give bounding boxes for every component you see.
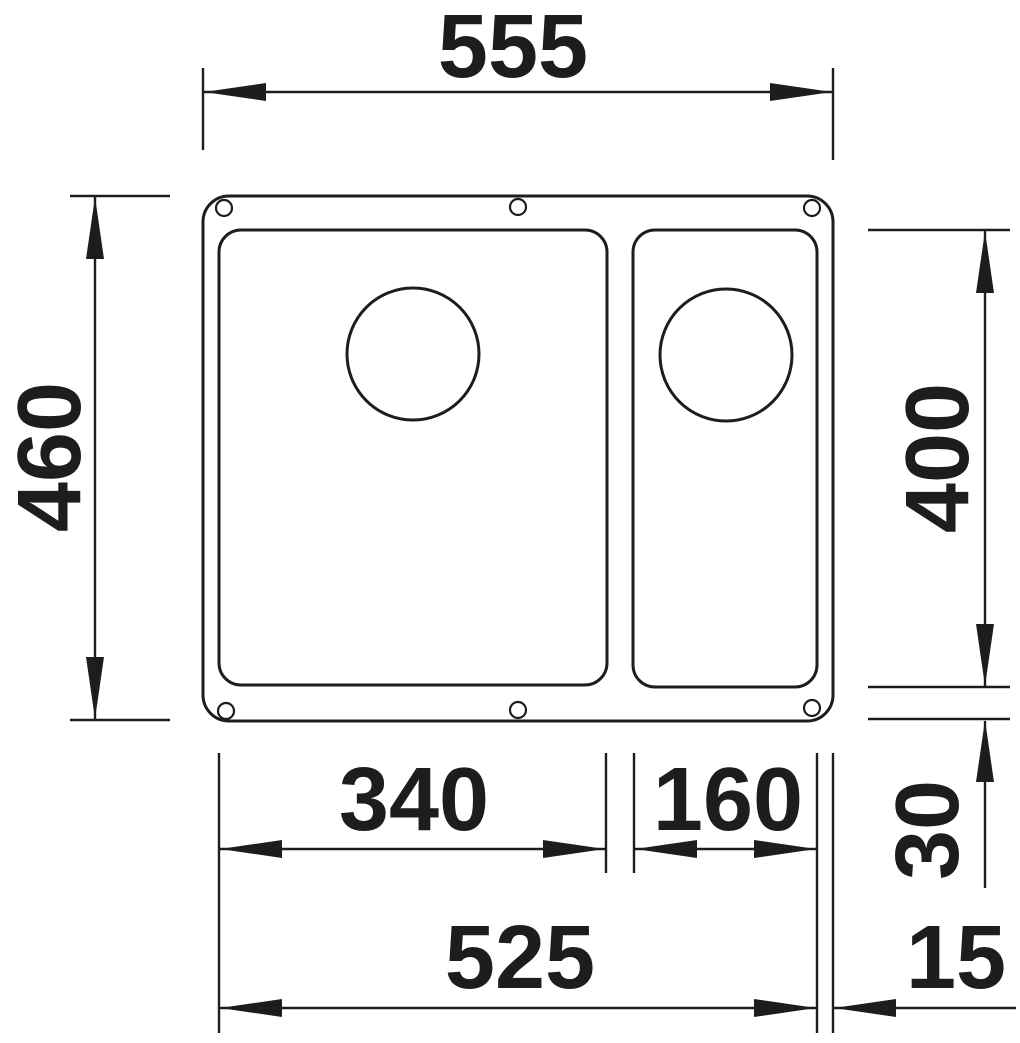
arrowhead-right bbox=[543, 840, 605, 858]
mounting-hole-top-left bbox=[216, 200, 232, 216]
dimension-bowl-depth: 400 bbox=[868, 230, 1010, 687]
drawing-canvas: 555 460 400 30 bbox=[0, 0, 1020, 1043]
sink-body bbox=[203, 196, 833, 721]
arrowhead-down bbox=[976, 624, 994, 686]
arrowhead-up bbox=[976, 231, 994, 293]
main-bowl bbox=[219, 230, 607, 685]
dimension-label-525: 525 bbox=[445, 908, 595, 1008]
dimension-label-400: 400 bbox=[888, 383, 988, 533]
arrowhead-up bbox=[86, 197, 104, 259]
dimension-label-30: 30 bbox=[878, 780, 978, 880]
dimension-bowls-span: 525 bbox=[220, 908, 816, 1017]
mounting-hole-bottom-right bbox=[804, 700, 820, 716]
mounting-hole-bottom-left bbox=[218, 703, 234, 719]
dimension-label-340: 340 bbox=[339, 750, 489, 850]
dimension-half-bowl-width: 160 bbox=[634, 750, 817, 1033]
dimension-label-160: 160 bbox=[653, 750, 803, 850]
sink-technical-drawing: 555 460 400 30 bbox=[0, 0, 1020, 1043]
arrowhead-left bbox=[204, 83, 266, 101]
mounting-hole-top-right bbox=[804, 200, 820, 216]
dimension-label-555: 555 bbox=[438, 0, 588, 97]
mounting-hole-top-center bbox=[510, 199, 526, 215]
sink-outer-edge bbox=[203, 196, 833, 721]
dimension-overall-depth: 460 bbox=[0, 196, 170, 720]
half-bowl bbox=[633, 230, 817, 687]
mounting-hole-bottom-center bbox=[510, 702, 526, 718]
dimension-rear-offset: 30 bbox=[868, 719, 1010, 888]
arrowhead-down bbox=[86, 657, 104, 719]
half-bowl-drain-circle bbox=[660, 289, 792, 421]
arrowhead-left bbox=[220, 840, 282, 858]
main-bowl-drain-circle bbox=[347, 288, 479, 420]
dimension-label-15: 15 bbox=[906, 908, 1006, 1008]
dimension-overall-width: 555 bbox=[203, 0, 833, 160]
dimension-label-460: 460 bbox=[0, 382, 100, 532]
arrowhead-right bbox=[770, 83, 832, 101]
arrowhead-right bbox=[754, 999, 816, 1017]
arrowhead-left bbox=[220, 999, 282, 1017]
